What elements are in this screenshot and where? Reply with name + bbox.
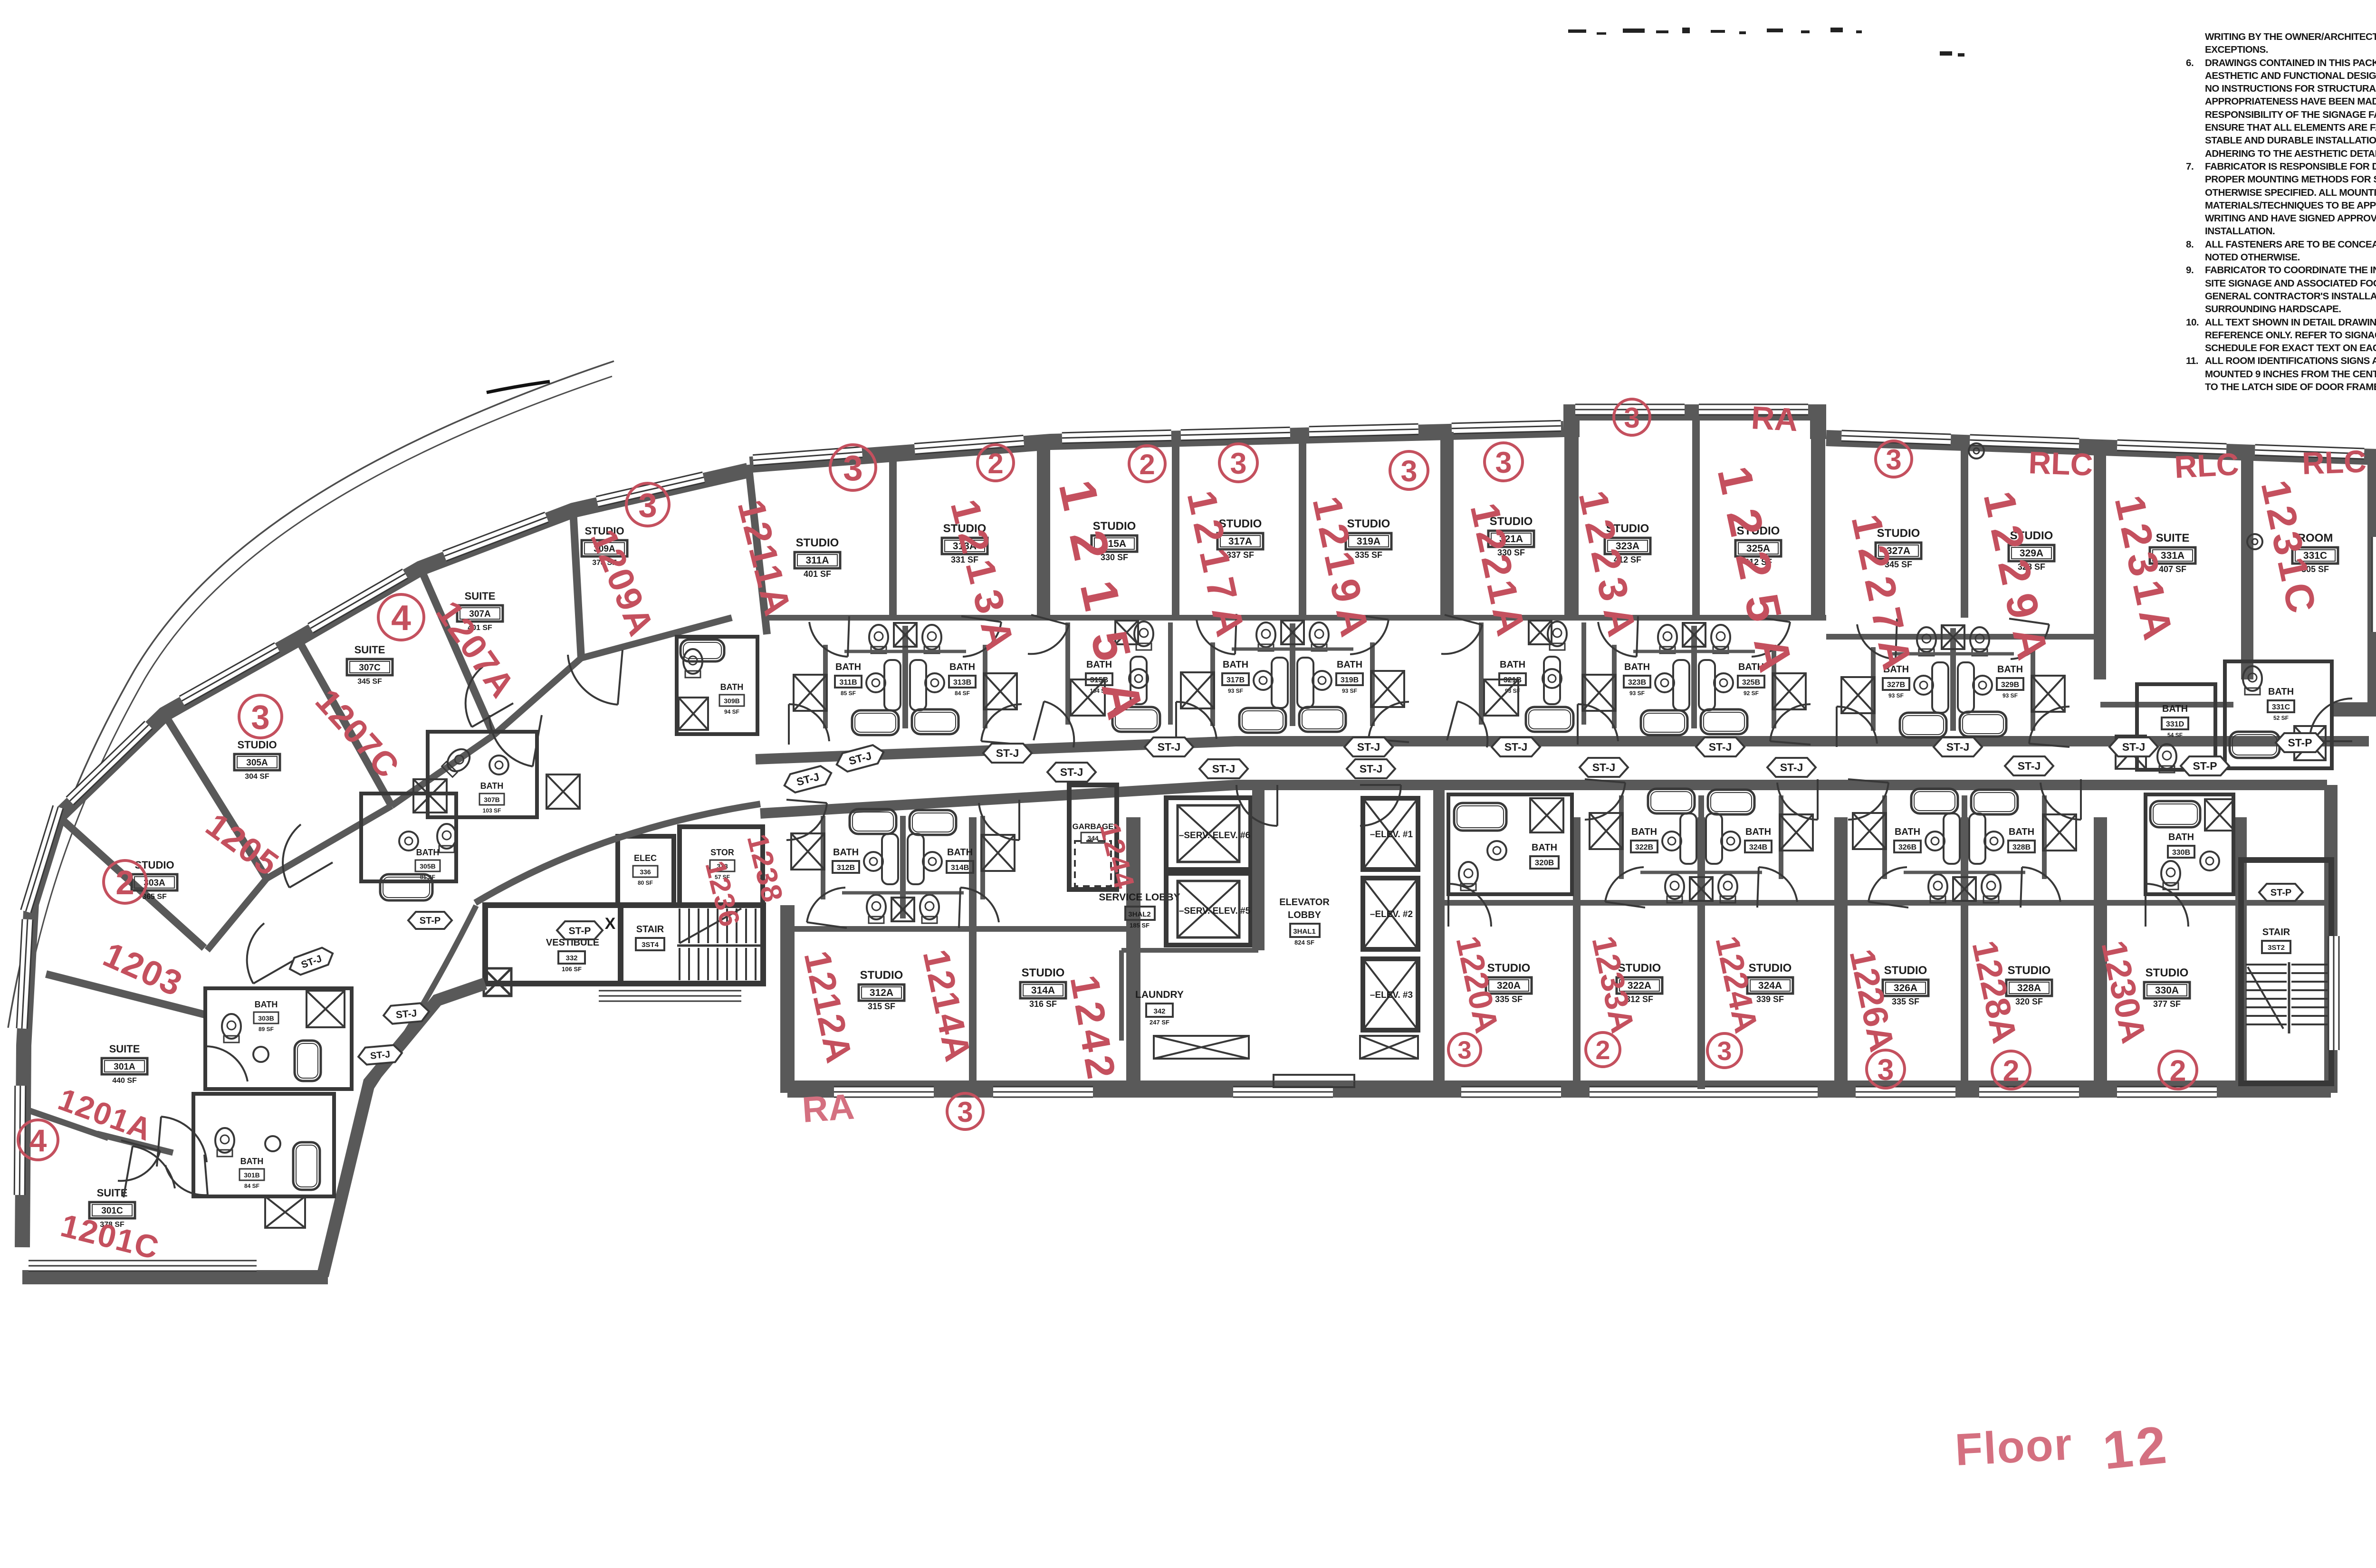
svg-text:3ST4: 3ST4 bbox=[642, 941, 659, 949]
svg-text:STUDIO: STUDIO bbox=[796, 536, 839, 549]
svg-text:ST-J: ST-J bbox=[370, 1049, 391, 1061]
svg-text:320B: 320B bbox=[1535, 858, 1554, 867]
svg-text:SUITE: SUITE bbox=[354, 644, 385, 656]
svg-text:X: X bbox=[605, 915, 616, 933]
svg-text:824 SF: 824 SF bbox=[1294, 939, 1314, 946]
svg-text:2: 2 bbox=[2002, 1054, 2019, 1088]
svg-text:316 SF: 316 SF bbox=[1029, 999, 1057, 1009]
svg-text:ST-J: ST-J bbox=[1212, 763, 1236, 775]
svg-text:93 SF: 93 SF bbox=[1888, 692, 1904, 699]
svg-text:327B: 327B bbox=[1887, 681, 1905, 689]
svg-text:3: 3 bbox=[843, 448, 863, 488]
svg-text:BATH: BATH bbox=[2168, 832, 2194, 842]
svg-text:377 SF: 377 SF bbox=[2153, 999, 2181, 1009]
svg-text:339 SF: 339 SF bbox=[1756, 994, 1784, 1004]
svg-text:440 SF: 440 SF bbox=[112, 1077, 137, 1085]
svg-text:93 SF: 93 SF bbox=[2002, 692, 2018, 699]
svg-text:2: 2 bbox=[987, 448, 1003, 479]
svg-text:301C: 301C bbox=[101, 1206, 123, 1216]
svg-text:ST-J: ST-J bbox=[1060, 766, 1083, 778]
svg-text:BATH: BATH bbox=[949, 662, 975, 672]
svg-text:STAIR: STAIR bbox=[636, 924, 664, 935]
svg-text:RA: RA bbox=[801, 1087, 855, 1130]
svg-text:313B: 313B bbox=[953, 679, 971, 687]
svg-text:BATH: BATH bbox=[480, 781, 504, 791]
svg-text:336: 336 bbox=[640, 868, 651, 876]
svg-text:185 SF: 185 SF bbox=[1130, 922, 1150, 929]
svg-text:80 SF: 80 SF bbox=[638, 880, 653, 886]
svg-text:BATH: BATH bbox=[947, 847, 973, 858]
svg-text:342: 342 bbox=[1153, 1007, 1165, 1015]
svg-text:324B: 324B bbox=[1749, 843, 1767, 851]
svg-text:ST-J: ST-J bbox=[1592, 761, 1616, 774]
svg-text:93 SF: 93 SF bbox=[1342, 688, 1357, 694]
svg-text:315 SF: 315 SF bbox=[868, 1002, 895, 1011]
svg-text:328A: 328A bbox=[2017, 983, 2041, 994]
svg-text:STUDIO: STUDIO bbox=[1022, 966, 1065, 979]
svg-text:SUITE: SUITE bbox=[465, 590, 496, 602]
svg-text:3: 3 bbox=[957, 1096, 973, 1128]
svg-text:Floor: Floor bbox=[1954, 1419, 2074, 1475]
svg-text:RLC: RLC bbox=[2028, 445, 2094, 482]
svg-text:319B: 319B bbox=[1341, 676, 1359, 684]
svg-text:314A: 314A bbox=[1031, 985, 1055, 996]
svg-text:STUDIO: STUDIO bbox=[237, 739, 277, 751]
svg-text:STUDIO: STUDIO bbox=[1884, 964, 1927, 977]
svg-text:ST-J: ST-J bbox=[1360, 763, 1383, 775]
svg-text:326B: 326B bbox=[1898, 843, 1916, 851]
svg-text:3: 3 bbox=[638, 487, 657, 525]
svg-text:52 SF: 52 SF bbox=[2273, 715, 2289, 721]
svg-text:331C: 331C bbox=[2272, 703, 2290, 711]
svg-text:BATH: BATH bbox=[1624, 662, 1650, 672]
svg-text:ST-P: ST-P bbox=[2193, 760, 2217, 772]
svg-text:BATH: BATH bbox=[1500, 660, 1525, 670]
svg-text:–SERV. ELEV. #6: –SERV. ELEV. #6 bbox=[1179, 831, 1250, 841]
svg-text:2: 2 bbox=[1595, 1035, 1610, 1065]
svg-text:330B: 330B bbox=[2172, 849, 2190, 857]
svg-text:324A: 324A bbox=[1758, 980, 1782, 991]
svg-text:BATH: BATH bbox=[833, 847, 859, 858]
svg-text:BATH: BATH bbox=[1631, 827, 1657, 837]
svg-text:–ELEV. #3: –ELEV. #3 bbox=[1370, 990, 1413, 1000]
svg-text:106 SF: 106 SF bbox=[562, 966, 582, 973]
svg-text:RA: RA bbox=[1750, 400, 1799, 438]
svg-text:ST-P: ST-P bbox=[569, 926, 591, 937]
svg-text:3: 3 bbox=[1624, 402, 1639, 434]
svg-text:301B: 301B bbox=[244, 1171, 259, 1179]
svg-text:LAUNDRY: LAUNDRY bbox=[1135, 989, 1184, 1000]
svg-text:BATH: BATH bbox=[2162, 704, 2188, 714]
svg-text:ST-J: ST-J bbox=[1946, 741, 1970, 753]
svg-text:326A: 326A bbox=[1894, 983, 1917, 994]
svg-text:–ELEV. #2: –ELEV. #2 bbox=[1370, 909, 1413, 919]
svg-text:BATH: BATH bbox=[720, 682, 744, 692]
svg-text:317B: 317B bbox=[1226, 676, 1245, 684]
svg-text:ST-J: ST-J bbox=[1709, 741, 1732, 753]
svg-text:304 SF: 304 SF bbox=[245, 773, 269, 781]
svg-text:3ST2: 3ST2 bbox=[2268, 944, 2285, 952]
svg-text:314B: 314B bbox=[951, 864, 969, 872]
svg-text:401 SF: 401 SF bbox=[804, 569, 831, 579]
svg-text:311B: 311B bbox=[839, 679, 857, 687]
svg-text:BATH: BATH bbox=[1223, 660, 1248, 670]
svg-text:3: 3 bbox=[1495, 446, 1512, 479]
svg-text:3: 3 bbox=[1877, 1053, 1894, 1087]
svg-text:STOR: STOR bbox=[710, 848, 734, 857]
svg-text:85 SF: 85 SF bbox=[841, 690, 856, 697]
svg-text:329B: 329B bbox=[2001, 681, 2019, 689]
svg-text:2: 2 bbox=[1139, 449, 1155, 480]
svg-text:STUDIO: STUDIO bbox=[2146, 966, 2189, 979]
svg-text:93 SF: 93 SF bbox=[1629, 690, 1645, 697]
svg-text:ST-P: ST-P bbox=[2288, 736, 2312, 749]
svg-text:12: 12 bbox=[2100, 1415, 2173, 1481]
svg-text:89 SF: 89 SF bbox=[259, 1026, 274, 1033]
svg-text:BATH: BATH bbox=[835, 662, 861, 672]
svg-text:–SERV. ELEV. #5: –SERV. ELEV. #5 bbox=[1179, 906, 1251, 916]
svg-text:ST-J: ST-J bbox=[1504, 741, 1528, 753]
svg-text:319A: 319A bbox=[1357, 536, 1380, 547]
svg-text:2: 2 bbox=[115, 864, 134, 902]
svg-text:331D: 331D bbox=[2166, 720, 2184, 728]
svg-text:BATH: BATH bbox=[2009, 827, 2034, 837]
svg-text:ST-J: ST-J bbox=[395, 1008, 417, 1021]
svg-text:3HAL1: 3HAL1 bbox=[1293, 927, 1316, 936]
svg-text:323B: 323B bbox=[1628, 679, 1646, 687]
svg-text:3: 3 bbox=[1230, 447, 1246, 480]
svg-text:BATH: BATH bbox=[1532, 842, 1557, 853]
svg-text:301A: 301A bbox=[114, 1062, 135, 1072]
svg-text:312B: 312B bbox=[837, 864, 855, 872]
svg-text:STUDIO: STUDIO bbox=[1749, 962, 1792, 975]
svg-text:3: 3 bbox=[1886, 444, 1901, 476]
svg-text:330A: 330A bbox=[2155, 985, 2179, 996]
svg-text:335 SF: 335 SF bbox=[1892, 997, 1919, 1006]
svg-text:84 SF: 84 SF bbox=[955, 690, 970, 697]
svg-text:328B: 328B bbox=[2012, 843, 2031, 851]
svg-text:2: 2 bbox=[2169, 1054, 2186, 1088]
svg-text:ST-J: ST-J bbox=[996, 747, 1019, 759]
svg-text:RLC: RLC bbox=[2174, 446, 2240, 485]
svg-text:ELEC: ELEC bbox=[634, 853, 657, 863]
svg-text:3HAL2: 3HAL2 bbox=[1128, 910, 1151, 918]
svg-text:ST-J: ST-J bbox=[1357, 741, 1380, 753]
svg-text:307C: 307C bbox=[359, 663, 381, 673]
svg-text:–ELEV. #1: –ELEV. #1 bbox=[1370, 830, 1413, 840]
svg-text:3: 3 bbox=[1400, 455, 1417, 488]
svg-text:SUITE: SUITE bbox=[109, 1043, 140, 1055]
svg-text:305B: 305B bbox=[420, 862, 435, 870]
svg-text:93 SF: 93 SF bbox=[1228, 688, 1243, 694]
svg-text:247 SF: 247 SF bbox=[1150, 1019, 1169, 1026]
svg-text:345 SF: 345 SF bbox=[357, 678, 382, 686]
svg-text:BATH: BATH bbox=[1745, 827, 1771, 837]
svg-text:307B: 307B bbox=[484, 796, 499, 803]
svg-text:BATH: BATH bbox=[255, 1000, 278, 1009]
svg-text:RLC: RLC bbox=[2301, 443, 2367, 481]
svg-text:309B: 309B bbox=[724, 697, 739, 705]
svg-text:STUDIO: STUDIO bbox=[860, 969, 903, 982]
svg-text:320 SF: 320 SF bbox=[2015, 997, 2043, 1006]
svg-text:320A: 320A bbox=[1497, 980, 1521, 991]
svg-text:4: 4 bbox=[391, 598, 411, 638]
svg-text:LOBBY: LOBBY bbox=[1288, 910, 1322, 920]
svg-text:ST-J: ST-J bbox=[2122, 741, 2146, 753]
svg-text:STAIR: STAIR bbox=[2262, 927, 2290, 937]
svg-text:312A: 312A bbox=[870, 987, 893, 998]
svg-text:BATH: BATH bbox=[1337, 660, 1362, 670]
svg-text:BATH: BATH bbox=[416, 848, 440, 857]
svg-text:ST-P: ST-P bbox=[2271, 888, 2291, 898]
svg-text:BATH: BATH bbox=[240, 1157, 264, 1166]
svg-text:94 SF: 94 SF bbox=[724, 708, 739, 715]
svg-text:ST-J: ST-J bbox=[2018, 760, 2041, 772]
svg-text:ST-P: ST-P bbox=[420, 916, 441, 926]
svg-text:BATH: BATH bbox=[2268, 687, 2294, 697]
svg-text:332: 332 bbox=[565, 954, 577, 962]
svg-text:3: 3 bbox=[1717, 1036, 1732, 1066]
svg-text:54 SF: 54 SF bbox=[2167, 732, 2183, 738]
svg-text:303B: 303B bbox=[258, 1014, 274, 1022]
svg-text:322B: 322B bbox=[1635, 843, 1653, 851]
svg-text:4: 4 bbox=[29, 1123, 47, 1158]
svg-text:3: 3 bbox=[251, 699, 270, 736]
svg-text:ST-J: ST-J bbox=[1780, 761, 1803, 774]
svg-text:STUDIO: STUDIO bbox=[2008, 964, 2051, 977]
svg-text:311A: 311A bbox=[805, 555, 829, 566]
svg-text:3: 3 bbox=[1457, 1036, 1471, 1064]
svg-text:103 SF: 103 SF bbox=[483, 807, 501, 814]
svg-text:ST-J: ST-J bbox=[1158, 741, 1181, 753]
svg-text:365 SF: 365 SF bbox=[142, 893, 167, 901]
svg-text:ELEVATOR: ELEVATOR bbox=[1279, 897, 1330, 908]
svg-text:84 SF: 84 SF bbox=[244, 1183, 259, 1189]
svg-text:305A: 305A bbox=[246, 758, 268, 768]
svg-text:BATH: BATH bbox=[1895, 827, 1920, 837]
